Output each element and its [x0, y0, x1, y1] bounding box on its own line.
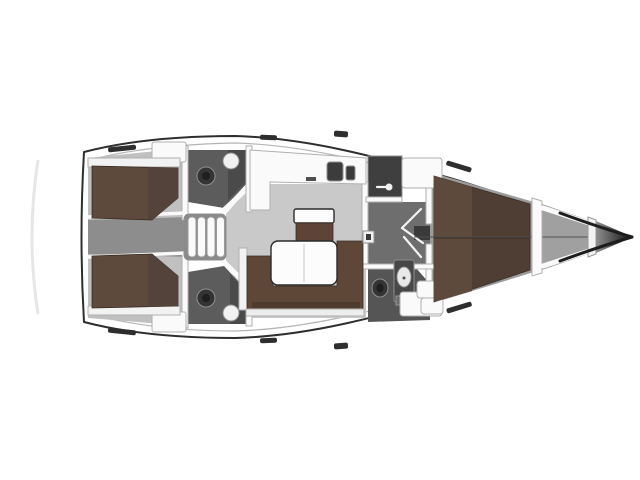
basin-drain — [403, 277, 406, 280]
coachroof-hatch-bottom — [334, 343, 348, 350]
galley-sink-large — [327, 162, 343, 181]
yacht-floor-plan — [0, 0, 640, 480]
coachroof-hatch-top — [334, 131, 348, 138]
saloon-sideboard — [239, 248, 247, 310]
deck-hatch-mid-bottom — [260, 338, 277, 344]
foredeck-hatch-bottom — [446, 301, 472, 313]
sofa-front-shadow — [252, 302, 360, 308]
forward-berth-light-facet — [434, 176, 472, 302]
toilet-port-bowl — [202, 172, 210, 180]
step-tread-2 — [198, 217, 206, 257]
stove-knobs — [306, 177, 316, 181]
step-tread-4 — [217, 217, 225, 257]
panel-box-inner — [366, 234, 371, 240]
wardrobe — [368, 156, 402, 202]
wardrobe-wall — [366, 197, 402, 202]
foredeck-hatch-top — [446, 160, 472, 172]
floor-plan-canvas — [0, 0, 640, 480]
sink-starboard — [223, 305, 239, 321]
deck-hatch-mid-top — [260, 135, 277, 141]
wardrobe-handle-knob — [386, 184, 393, 191]
nav-seat-body — [296, 223, 333, 243]
swim-platform-line — [32, 160, 38, 314]
sofa-base — [246, 309, 364, 316]
galley-sink-small — [346, 166, 355, 180]
step-tread-1 — [188, 217, 196, 257]
toilet-starboard-bowl — [202, 294, 210, 302]
nav-seat-top — [294, 209, 334, 223]
step-tread-3 — [207, 217, 215, 257]
forward-bulkhead — [532, 198, 542, 276]
toilet-forward-bowl — [377, 284, 384, 293]
sink-port — [223, 153, 239, 169]
port-bed-shelf — [88, 158, 180, 167]
